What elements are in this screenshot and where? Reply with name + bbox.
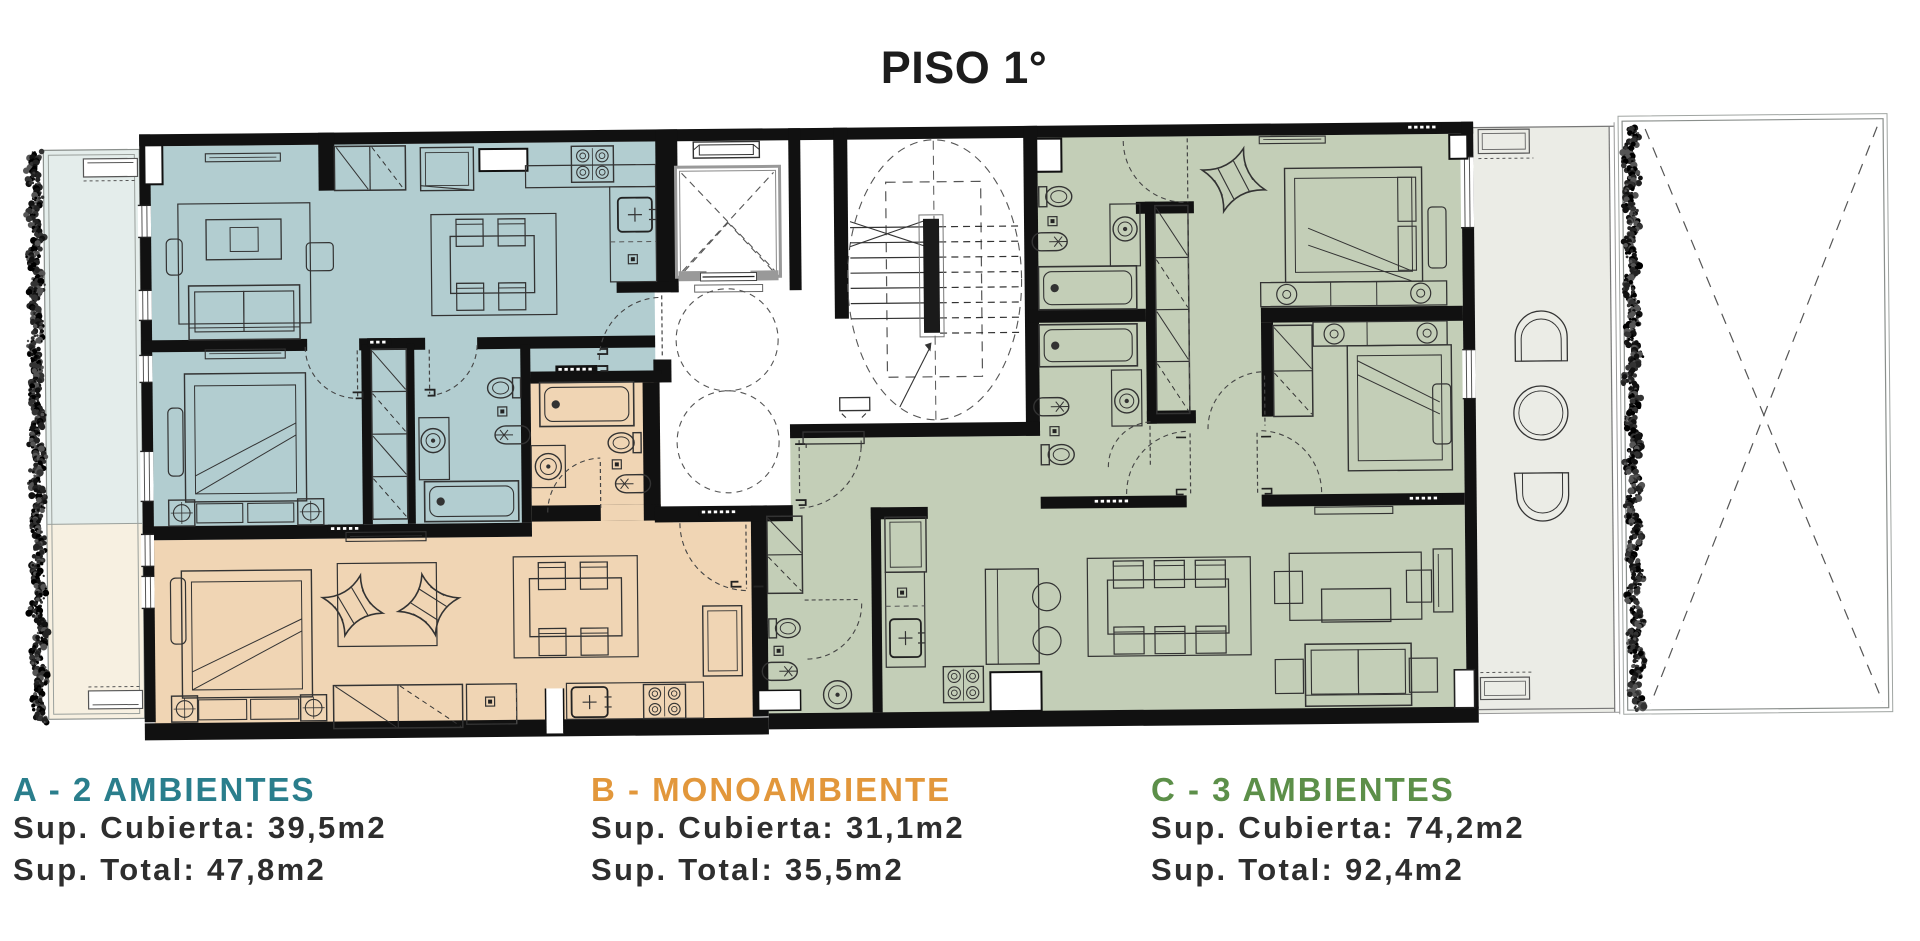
svg-text:C - 3 AMBIENTES: C - 3 AMBIENTES — [1151, 771, 1455, 808]
svg-text:Sup. Cubierta: 39,5m2: Sup. Cubierta: 39,5m2 — [13, 810, 387, 845]
svg-text:A - 2 AMBIENTES: A - 2 AMBIENTES — [13, 771, 316, 808]
svg-text:Sup. Total: 47,8m2: Sup. Total: 47,8m2 — [13, 852, 326, 887]
svg-text:Sup. Total: 92,4m2: Sup. Total: 92,4m2 — [1151, 852, 1464, 887]
svg-text:Sup. Total: 35,5m2: Sup. Total: 35,5m2 — [591, 852, 904, 887]
svg-text:PISO 1°: PISO 1° — [881, 42, 1048, 93]
svg-text:B - MONOAMBIENTE: B - MONOAMBIENTE — [591, 771, 951, 808]
svg-text:Sup. Cubierta: 74,2m2: Sup. Cubierta: 74,2m2 — [1151, 810, 1525, 845]
svg-text:Sup. Cubierta: 31,1m2: Sup. Cubierta: 31,1m2 — [591, 810, 965, 845]
